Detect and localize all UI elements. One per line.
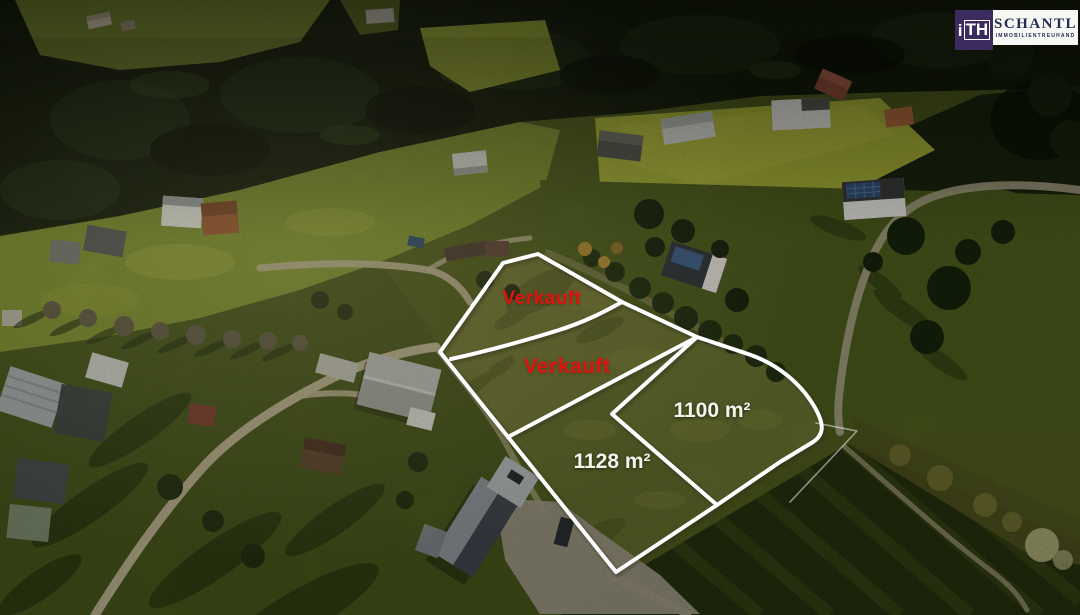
landscape-layer [0, 0, 1080, 615]
landscape-scene [0, 0, 1080, 615]
ith-logo-mark: iTH [955, 10, 993, 50]
brand-name: SCHANTL [994, 16, 1077, 33]
logo-i: i [958, 22, 963, 39]
brand-logo: iTH SCHANTL IMMOBILIENTREUHAND [955, 10, 1078, 50]
brand-tagline: IMMOBILIENTREUHAND [996, 33, 1076, 39]
aerial-property-photo: Verkauft Verkauft 1100 m² 1128 m² iTH SC… [0, 0, 1080, 615]
brand-name-box: SCHANTL IMMOBILIENTREUHAND [993, 10, 1078, 45]
logo-th: TH [964, 20, 991, 40]
